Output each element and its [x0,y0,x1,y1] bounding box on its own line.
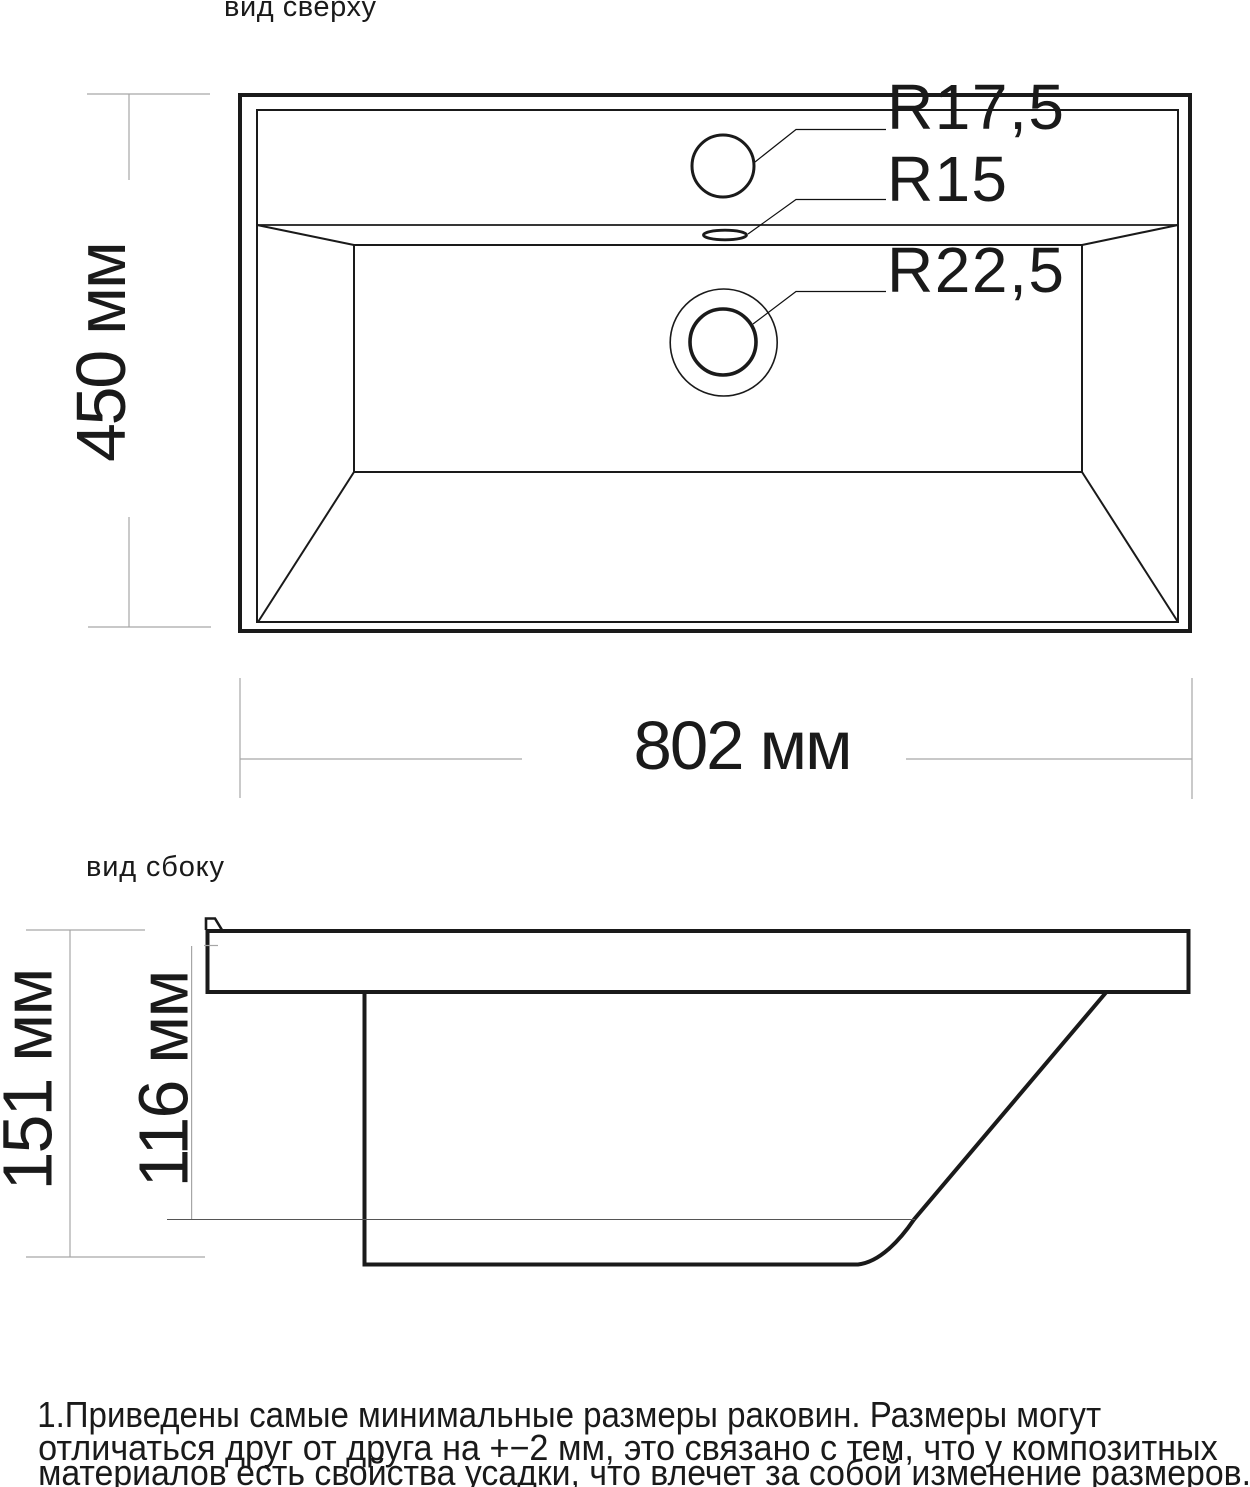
svg-text:вид сверху: вид сверху [224,0,377,23]
svg-text:материалов есть свойства усадк: материалов есть свойства усадки, что вле… [38,1453,1250,1487]
svg-text:R22,5: R22,5 [887,234,1064,306]
svg-text:R17,5: R17,5 [887,71,1064,143]
svg-text:151 мм: 151 мм [0,968,67,1191]
svg-text:450 мм: 450 мм [62,241,140,462]
svg-text:вид сбоку: вид сбоку [86,851,225,883]
svg-text:802 мм: 802 мм [634,707,853,784]
svg-text:116 мм: 116 мм [125,970,203,1188]
svg-text:R15: R15 [887,143,1007,215]
